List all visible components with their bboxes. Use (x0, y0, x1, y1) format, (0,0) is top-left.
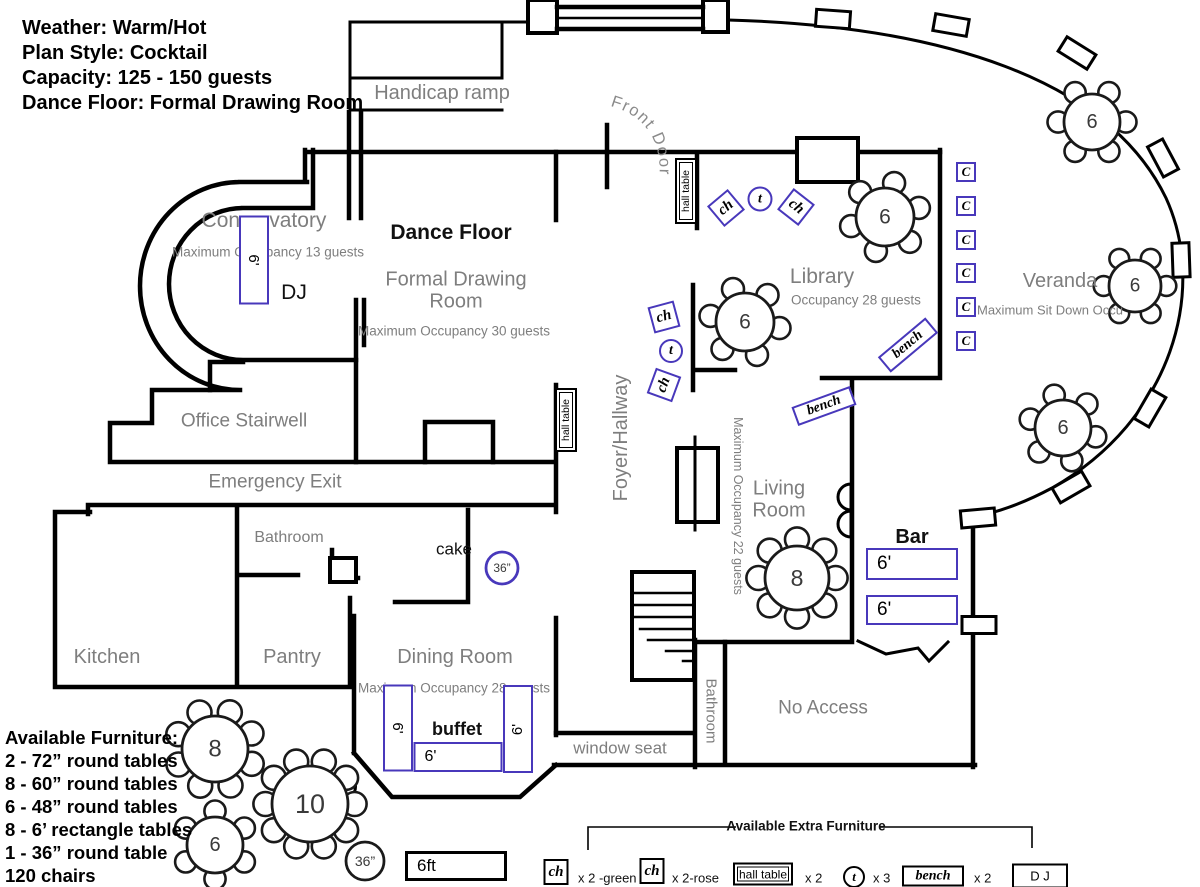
round-table-avail-6-seat-count: 6 (209, 834, 220, 856)
info-capacity: Capacity: 125 - 150 guests (22, 66, 363, 91)
round-table-avail-10: 10 (253, 750, 366, 859)
furniture-list-title: Available Furniture: (5, 726, 192, 749)
round-table-36-avail: 36” (346, 842, 384, 880)
info-weather: Weather: Warm/Hot (22, 16, 363, 41)
cake-table-36-seat-count: 36” (493, 561, 510, 575)
furniture-list-item: 6 - 48” round tables (5, 795, 192, 818)
stairs (632, 572, 694, 680)
fireplace (797, 138, 858, 182)
round-table-library-1: 6 (840, 172, 930, 262)
extra-furniture-bracket (588, 827, 1032, 850)
available-furniture-list: Available Furniture: 2 - 72” round table… (5, 726, 192, 887)
svg-text:Front Door: Front Door (609, 93, 674, 177)
door-living-1 (838, 484, 851, 510)
wall-dining-bay (354, 510, 556, 797)
info-panel: Weather: Warm/Hot Plan Style: Cocktail C… (22, 16, 363, 116)
wall-conservatory (140, 150, 356, 390)
porch-post-left (528, 0, 557, 33)
furniture-list-item: 8 - 6’ rectangle tables (5, 818, 192, 841)
door-living-2 (838, 511, 851, 537)
floor-plan: Front Door 666668810636”36” Handicap ram… (0, 0, 1200, 887)
round-table-avail-10-seat-count: 10 (295, 789, 325, 819)
furniture-list-item: 8 - 60” round tables (5, 772, 192, 795)
furniture-list-item: 120 chairs (5, 864, 192, 887)
round-table-36-avail-seat-count: 36” (355, 853, 376, 869)
wall-zigzag (858, 641, 948, 661)
round-table-library-2: 6 (700, 278, 791, 366)
info-plan-style: Plan Style: Cocktail (22, 41, 363, 66)
round-table-living-seat-count: 8 (791, 565, 804, 591)
furniture-list-item: 2 - 72” round tables (5, 749, 192, 772)
front-door-label: Front Door (609, 93, 674, 177)
round-table-avail-8-seat-count: 8 (208, 736, 221, 763)
round-table-living: 8 (746, 527, 847, 628)
round-table-library-2-seat-count: 6 (739, 311, 751, 334)
pantry-closet (330, 558, 356, 582)
handicap-ramp (350, 22, 528, 110)
wall-closet-top (425, 422, 493, 462)
round-table-topright-seat-count: 6 (1086, 111, 1097, 133)
round-table-topright: 6 (1048, 82, 1137, 162)
wall-dancefloor-divider (349, 112, 364, 462)
furniture-list-item: 1 - 36” round table (5, 841, 192, 864)
cake-table-36: 36” (486, 552, 518, 584)
round-table-veranda-1-seat-count: 6 (1130, 276, 1141, 297)
round-table-library-1-seat-count: 6 (879, 206, 891, 229)
round-table-veranda-2-seat-count: 6 (1057, 417, 1068, 439)
porch-post-right (703, 0, 728, 32)
wall-corridor-kitchen (55, 362, 553, 687)
info-dance-floor: Dance Floor: Formal Drawing Room (22, 91, 363, 116)
veranda-windows (815, 9, 1190, 633)
round-table-veranda-1: 6 (1094, 249, 1177, 323)
foyer-closet (677, 448, 718, 522)
